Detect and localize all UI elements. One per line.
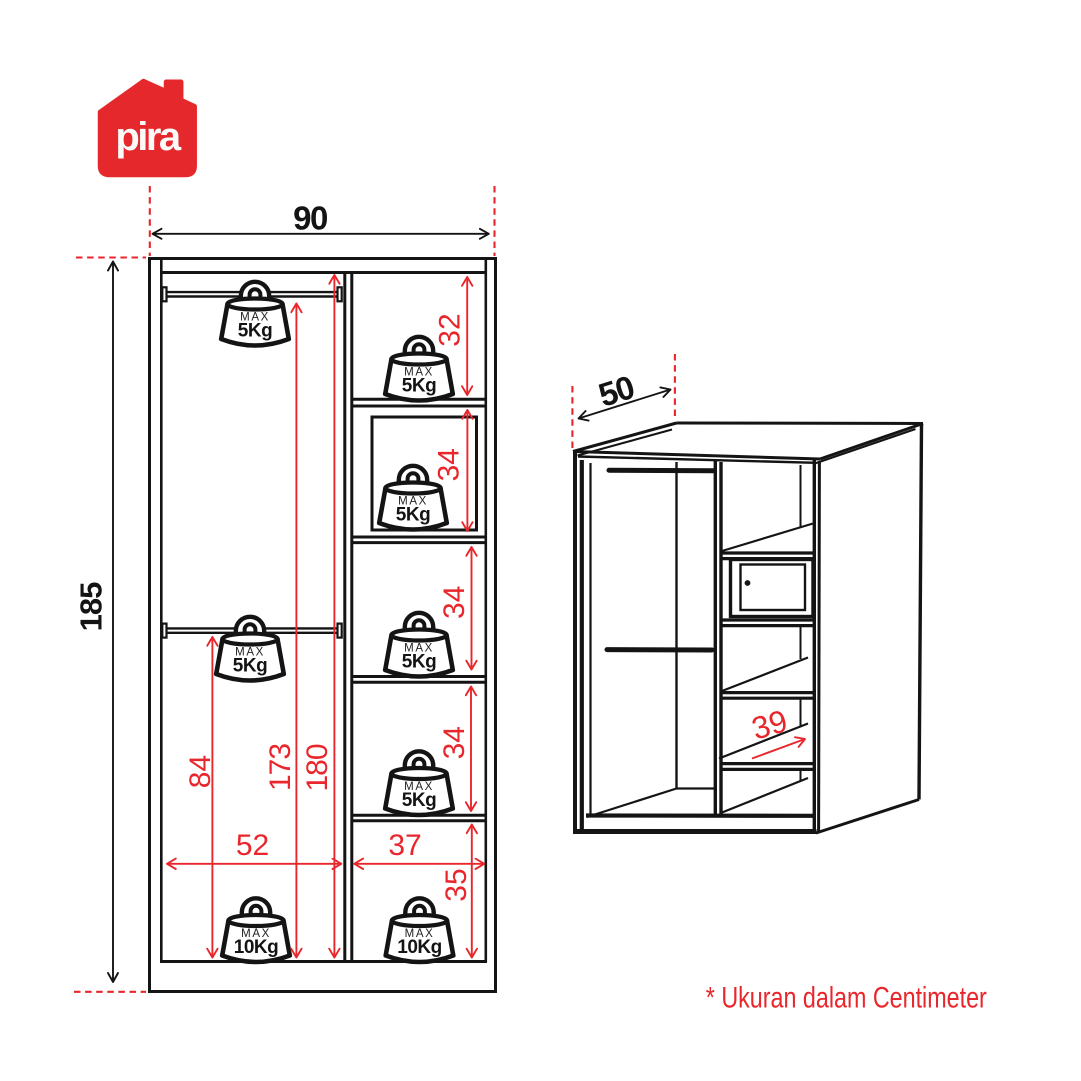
svg-text:185: 185 (73, 582, 108, 631)
svg-text:* Ukuran dalam Centimeter: * Ukuran dalam Centimeter (706, 982, 987, 1015)
svg-text:5Kg: 5Kg (233, 656, 267, 677)
svg-text:5Kg: 5Kg (396, 505, 430, 526)
svg-text:173: 173 (264, 744, 297, 791)
svg-text:37: 37 (388, 829, 421, 862)
svg-text:34: 34 (433, 448, 466, 481)
svg-text:84: 84 (184, 755, 217, 788)
svg-text:34: 34 (438, 726, 471, 759)
svg-text:90: 90 (293, 200, 327, 237)
svg-text:5Kg: 5Kg (402, 790, 436, 811)
svg-text:32: 32 (434, 313, 467, 346)
svg-text:5Kg: 5Kg (402, 376, 436, 397)
svg-text:pira: pira (115, 115, 182, 159)
svg-text:35: 35 (440, 868, 473, 901)
svg-text:10Kg: 10Kg (234, 937, 278, 958)
svg-text:5Kg: 5Kg (402, 652, 436, 673)
svg-text:34: 34 (438, 586, 471, 619)
svg-text:52: 52 (236, 829, 269, 862)
svg-text:5Kg: 5Kg (238, 321, 272, 342)
svg-text:10Kg: 10Kg (397, 937, 441, 958)
svg-text:180: 180 (301, 744, 334, 791)
